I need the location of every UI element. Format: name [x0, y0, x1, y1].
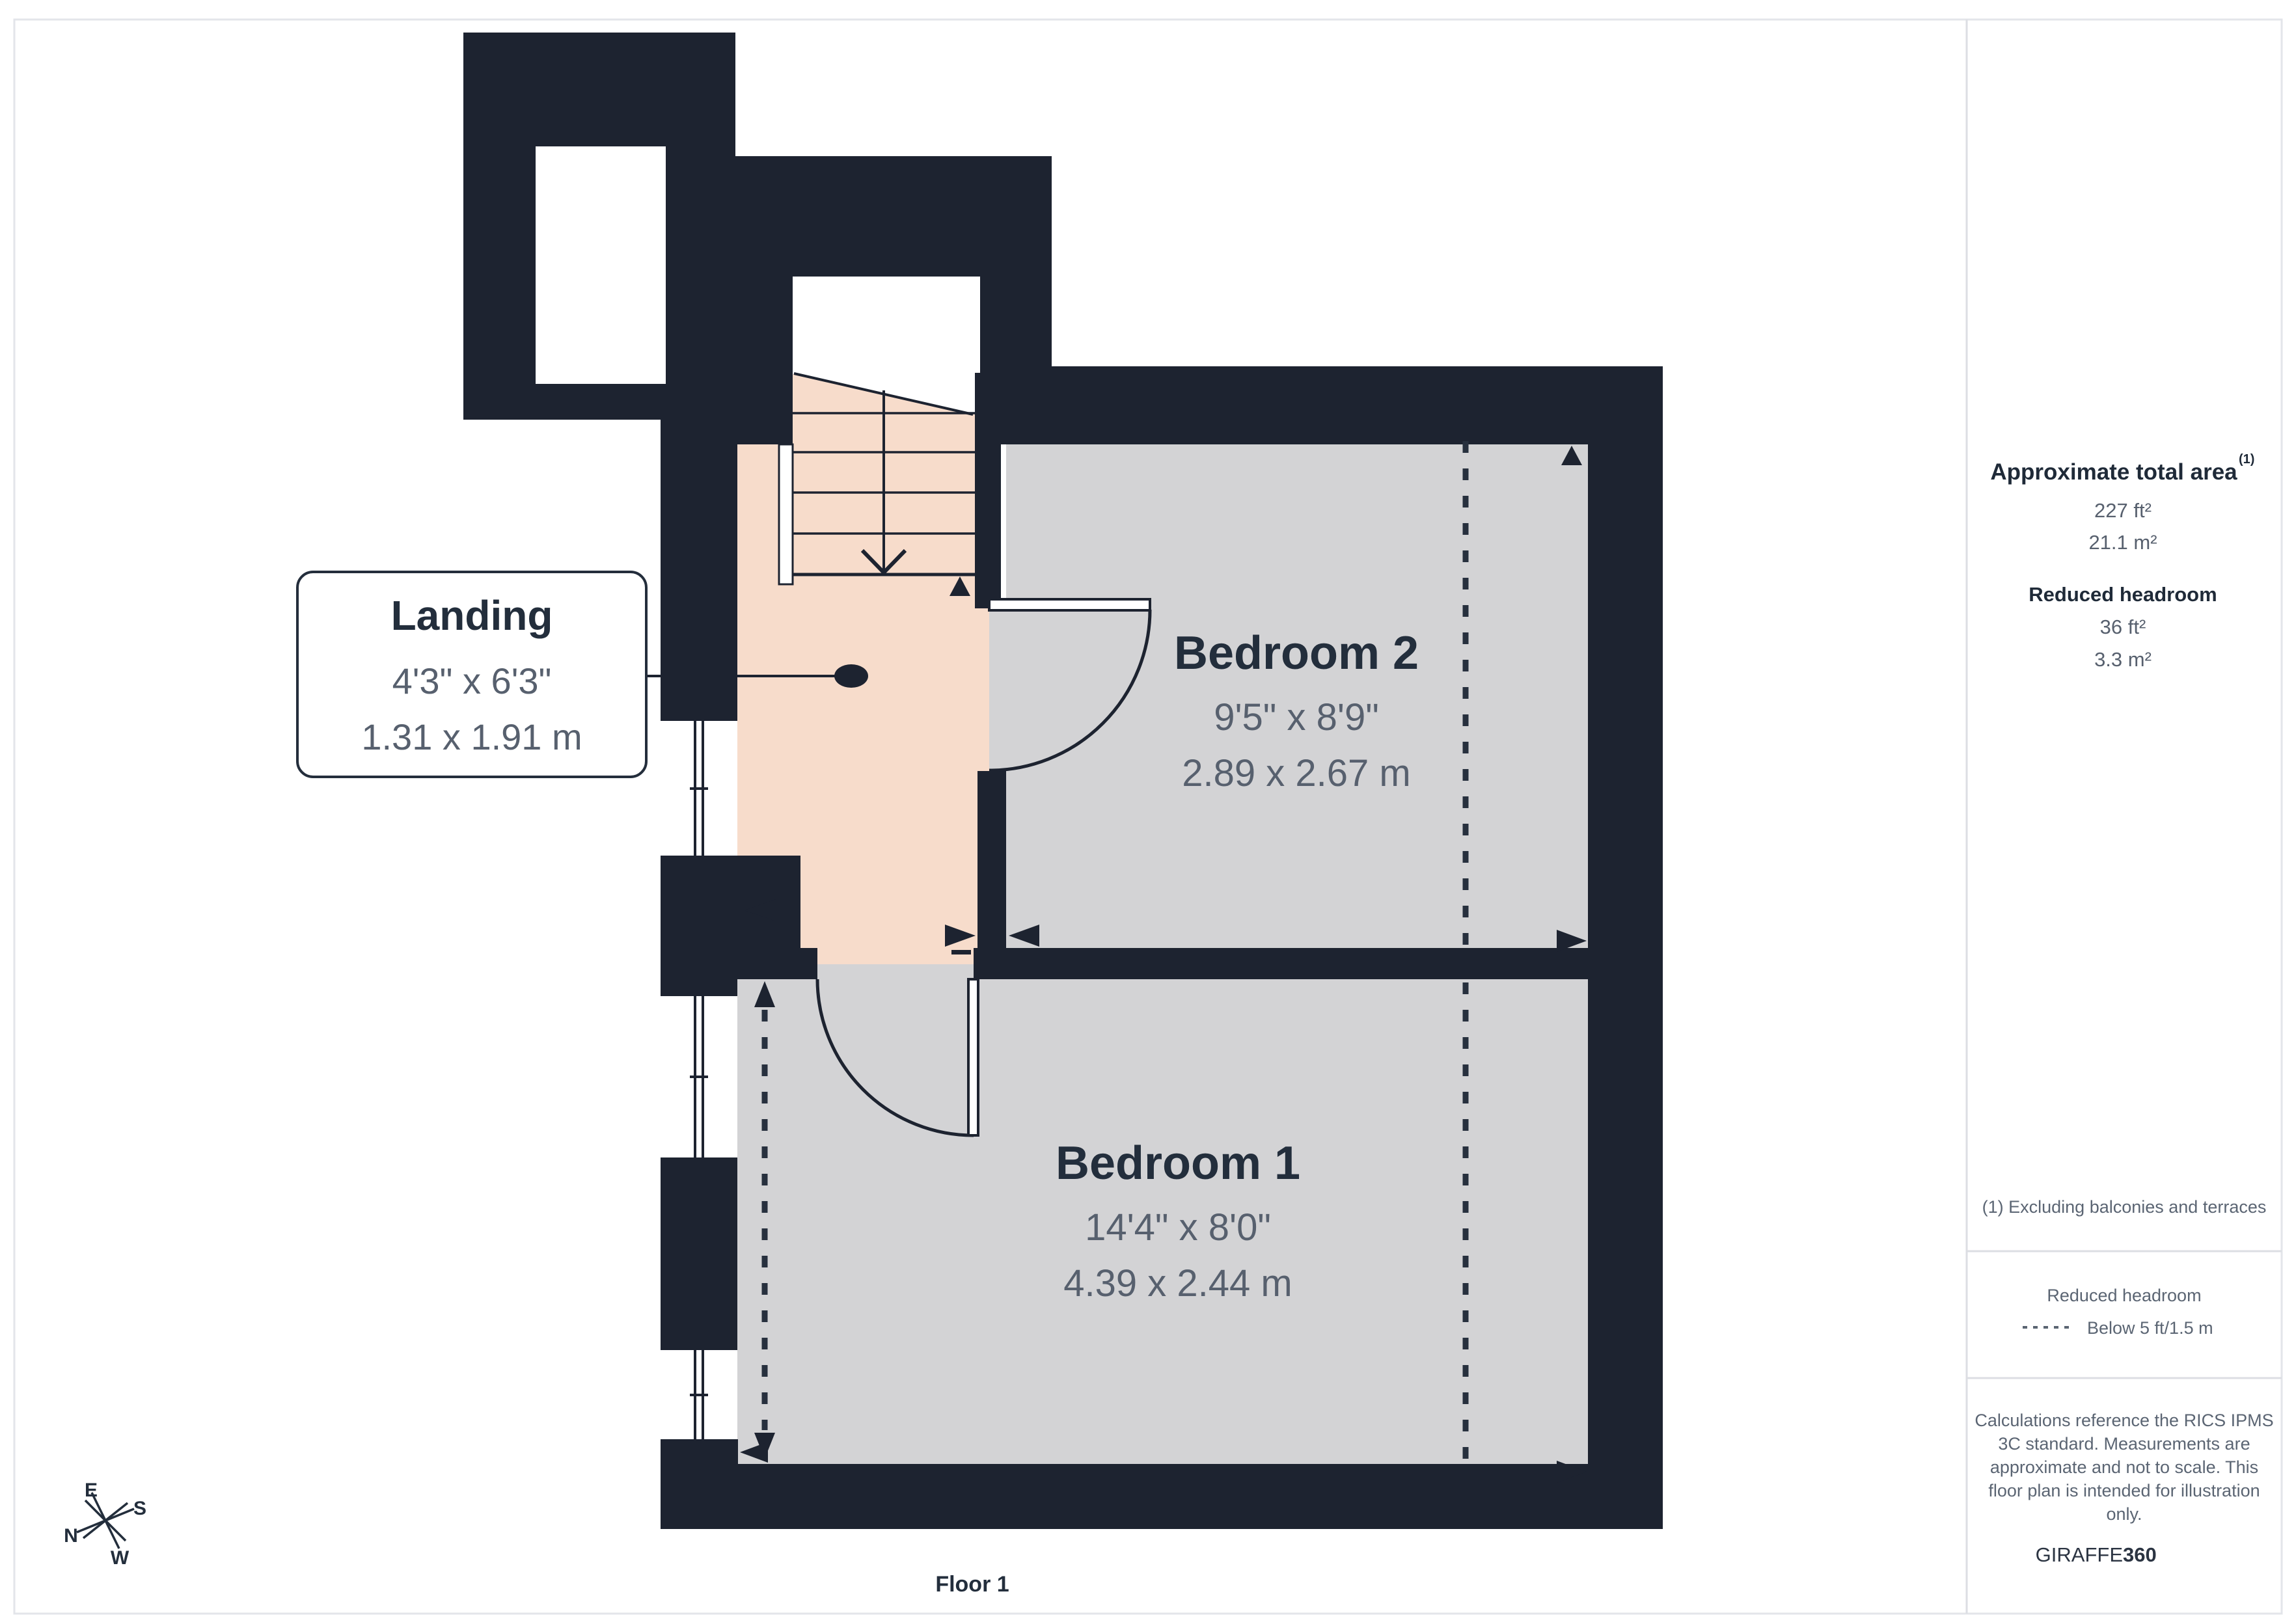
legend-item: Below 5 ft/1.5 m	[2087, 1318, 2213, 1338]
brand-logo: GIRAFFE 360	[2036, 1543, 2157, 1566]
door-leaf	[968, 979, 978, 1135]
landing-floor-strip	[737, 444, 779, 575]
disclaimer-line: only.	[2106, 1504, 2142, 1524]
disclaimer-line: 3C standard. Measurements are	[1998, 1434, 2250, 1454]
brand-suffix: 360	[2123, 1543, 2157, 1566]
bedroom1-dims-ft: 14'4" x 8'0"	[1085, 1206, 1271, 1249]
window-bedroom1-b	[661, 1350, 737, 1439]
wall-landing-sw	[661, 856, 800, 948]
compass-s-label: S	[133, 1498, 146, 1519]
dimension-bar	[951, 950, 971, 954]
wall-left-pier	[661, 1157, 737, 1350]
callout-anchor-dot	[834, 664, 868, 688]
bedroom1-title: Bedroom 1	[1056, 1137, 1300, 1189]
compass-e-label: E	[85, 1480, 98, 1501]
total-area-heading: Approximate total area	[1990, 459, 2237, 485]
reduced-headroom-heading: Reduced headroom	[2029, 583, 2217, 606]
wall-chimney-bottom-band	[463, 384, 737, 420]
stair-half-wall	[779, 444, 793, 584]
total-area-m: 21.1 m²	[2088, 531, 2157, 554]
floorplan-page: Landing 4'3" x 6'3" 1.31 x 1.91 m Bedroo…	[0, 0, 2296, 1624]
wall-left-piece	[661, 979, 737, 996]
compass-n-label: N	[64, 1525, 78, 1547]
chimney-void	[536, 146, 666, 384]
disclaimer-line: floor plan is intended for illustration	[1988, 1481, 2260, 1500]
wall-stair-stub	[975, 373, 1001, 608]
bedroom1-dims-m: 4.39 x 2.44 m	[1063, 1262, 1292, 1305]
doorway-strip-landing	[977, 608, 989, 771]
doorway-strip-landing2	[817, 948, 974, 964]
wall-divider-west	[661, 948, 817, 979]
landing-dims-m: 1.31 x 1.91 m	[361, 716, 582, 757]
floor-label: Floor 1	[935, 1572, 1009, 1597]
doorway-strip-bedroom2	[989, 608, 1006, 771]
window-bedroom1-a	[661, 996, 737, 1157]
legend-title: Reduced headroom	[2047, 1286, 2201, 1305]
compass-w-label: W	[111, 1547, 130, 1569]
reduced-headroom-ft: 36 ft²	[2100, 616, 2146, 638]
wall-bottom	[661, 1464, 1663, 1529]
landing-title: Landing	[391, 592, 553, 639]
window-landing	[661, 721, 737, 856]
wall-landing-bedroom2	[977, 771, 1006, 952]
total-area-footnote-marker: (1)	[2239, 452, 2254, 467]
total-area-ft: 227 ft²	[2094, 499, 2152, 522]
floorplan-canvas: Landing 4'3" x 6'3" 1.31 x 1.91 m Bedroo…	[0, 0, 2296, 1624]
doorway-strip-bedroom1	[817, 964, 974, 979]
wall-right	[1588, 366, 1663, 1529]
bedroom2-dims-ft: 9'5" x 8'9"	[1214, 696, 1379, 738]
bedroom2-title: Bedroom 2	[1174, 627, 1419, 679]
brand-name: GIRAFFE	[2036, 1543, 2123, 1566]
reduced-headroom-m: 3.3 m²	[2094, 648, 2152, 671]
dimension-bar	[736, 900, 742, 920]
disclaimer-line: Calculations reference the RICS IPMS	[1975, 1411, 2273, 1430]
wall-divider-east	[974, 948, 1663, 979]
door-leaf	[989, 599, 1150, 610]
landing-dims-ft: 4'3" x 6'3"	[392, 660, 552, 701]
sidebar-footnote: (1) Excluding balconies and terraces	[1982, 1197, 2267, 1217]
wall-bedroom2-top	[1001, 366, 1663, 444]
bedroom2-dims-m: 2.89 x 2.67 m	[1182, 752, 1410, 794]
disclaimer-line: approximate and not to scale. This	[1990, 1457, 2258, 1477]
wall-chimney-right-column	[980, 277, 1052, 373]
